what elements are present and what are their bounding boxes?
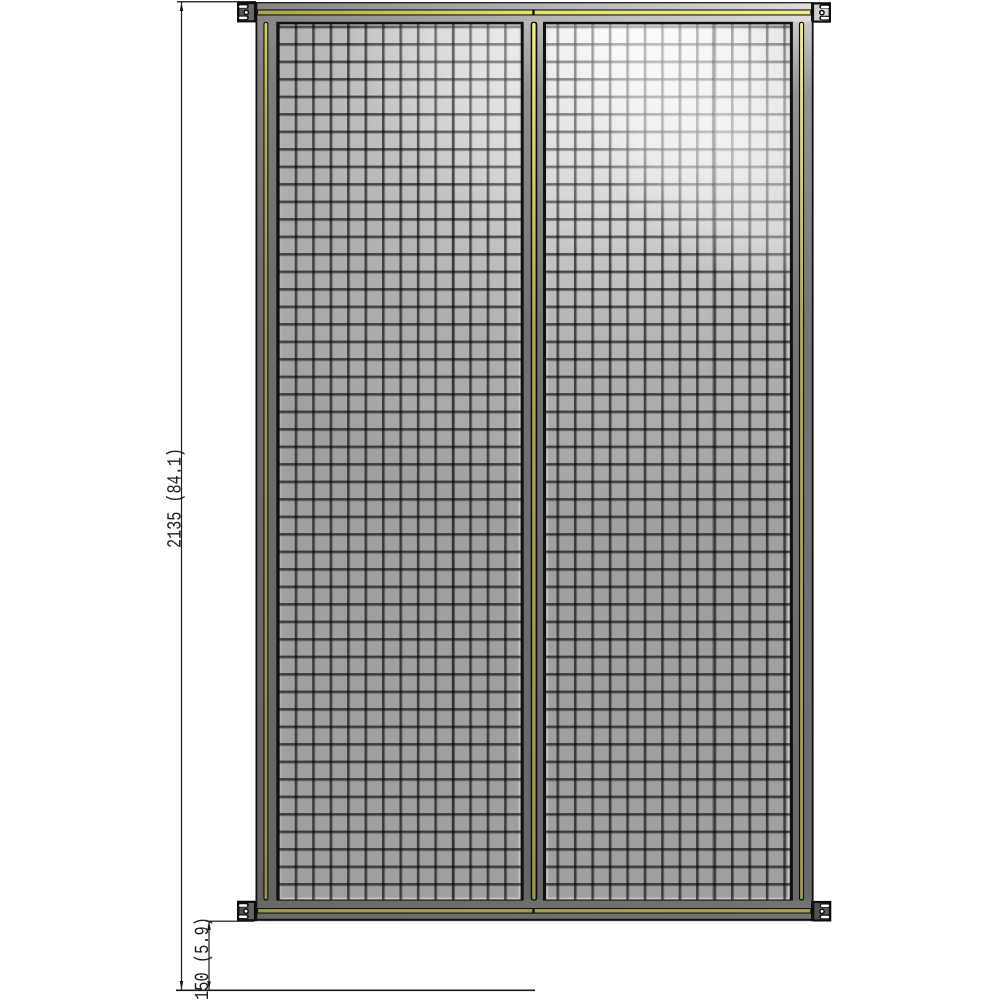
svg-text:150 (5.9): 150 (5.9) [192,917,215,1000]
svg-text:2135 (84.1): 2135 (84.1) [165,448,188,548]
